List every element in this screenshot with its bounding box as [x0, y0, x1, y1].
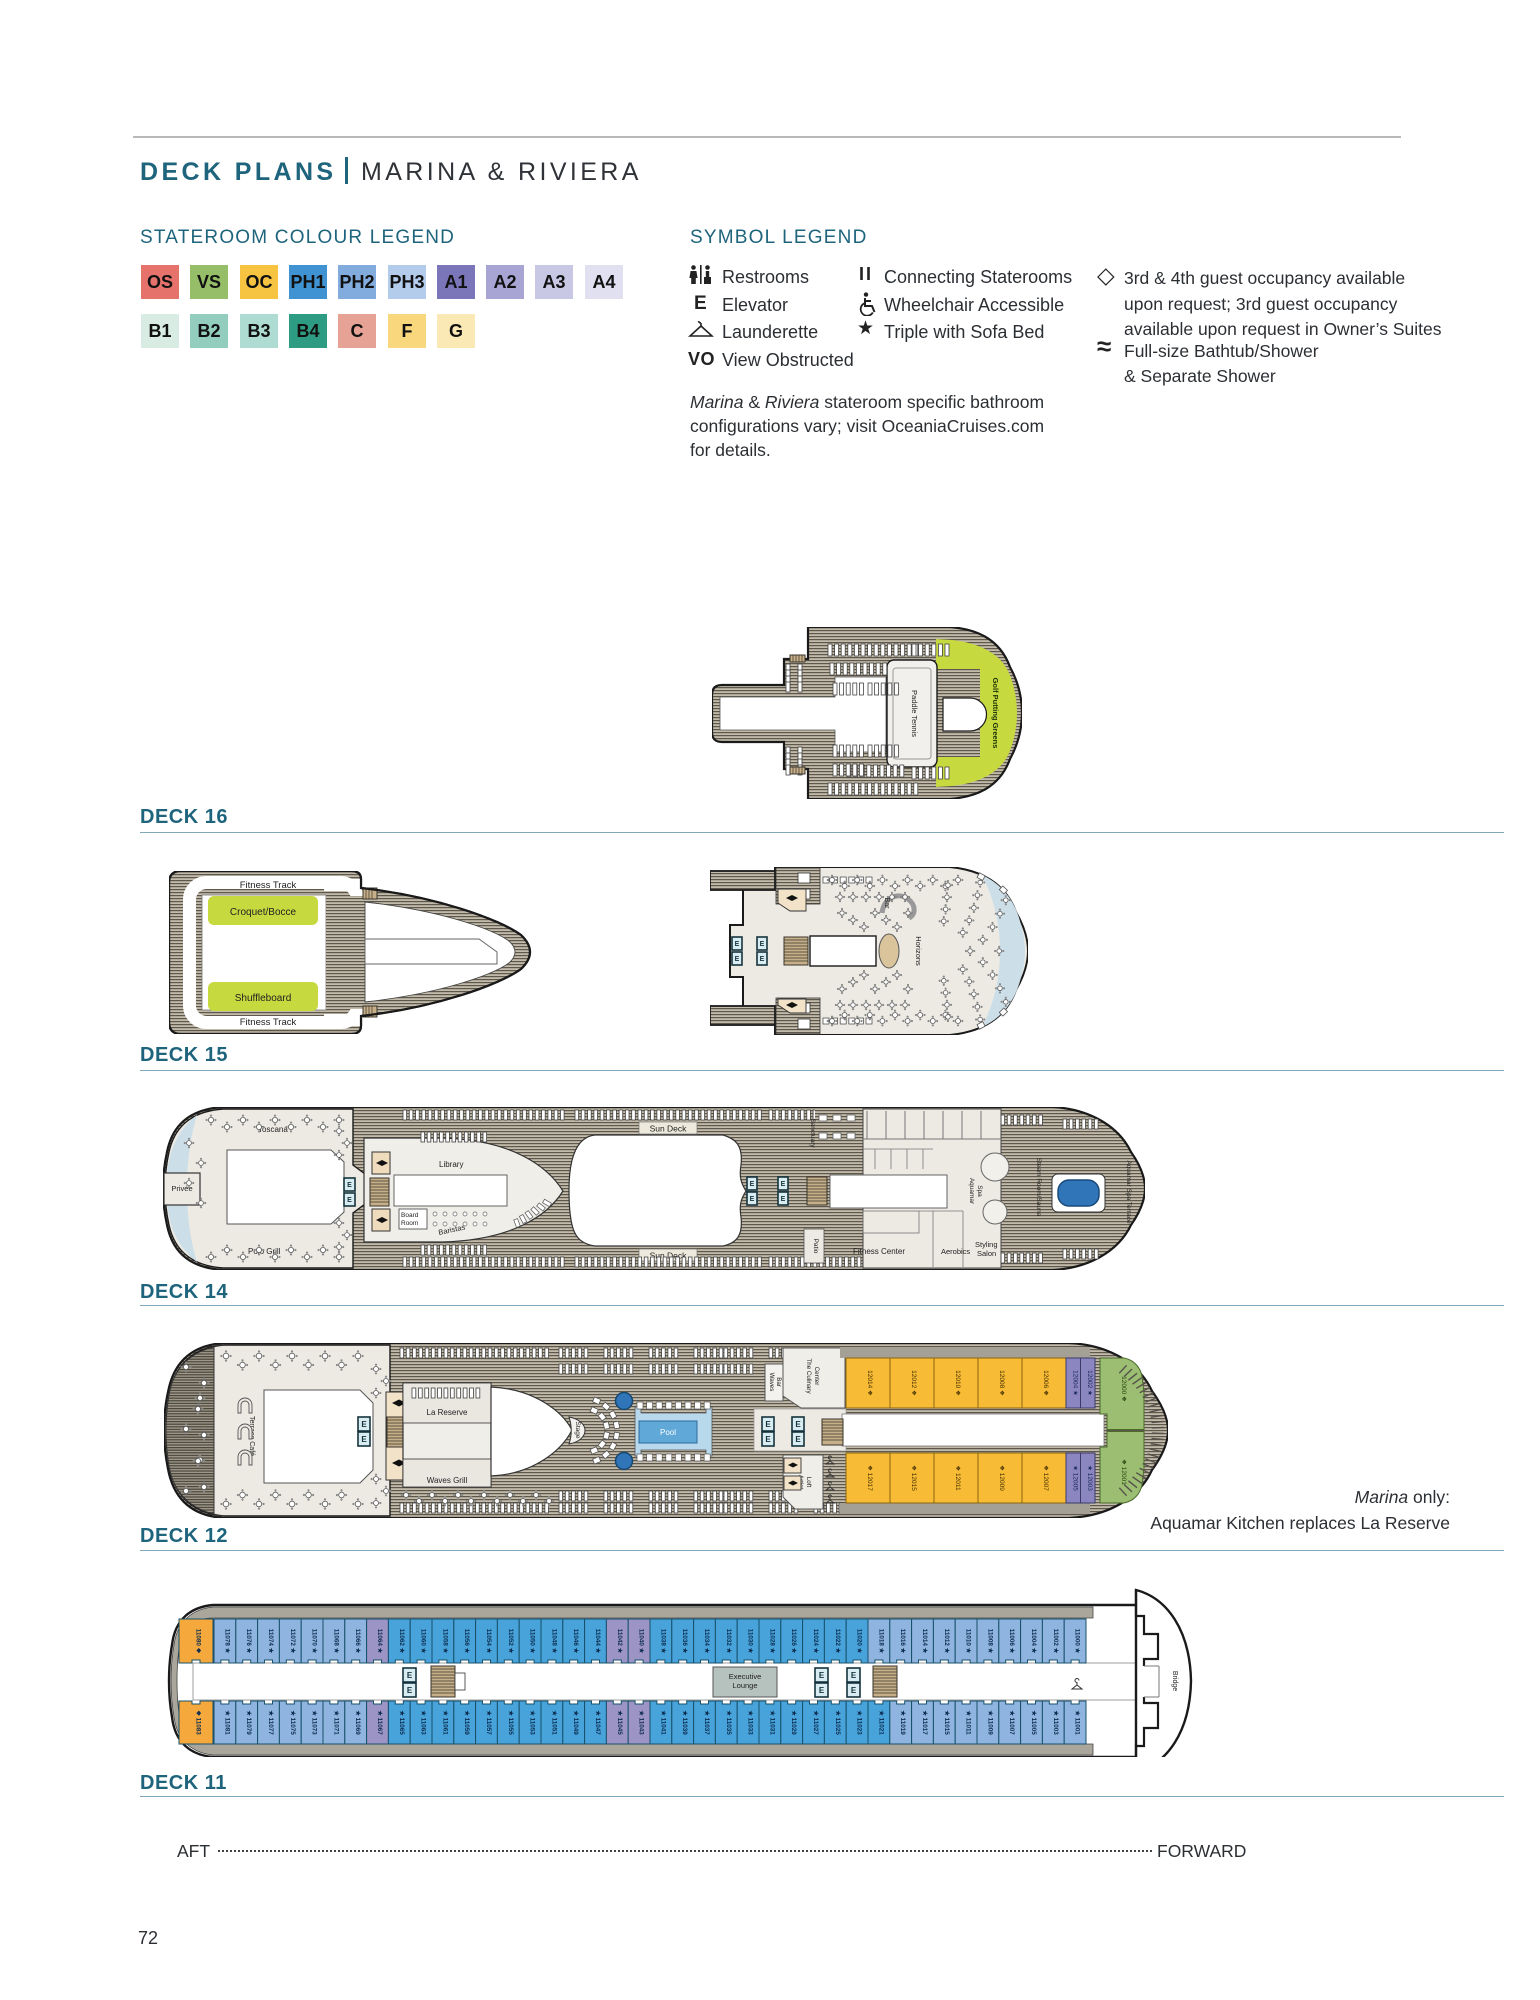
- svg-text:Patio: Patio: [812, 1239, 819, 1254]
- svg-text:★ 11043: ★ 11043: [638, 1709, 645, 1735]
- svg-text:Loft: Loft: [805, 1477, 812, 1488]
- svg-text:E: E: [765, 1420, 771, 1429]
- svg-text:12002 ★: 12002 ★: [1086, 1370, 1094, 1396]
- svg-text:12010 ❖: 12010 ❖: [954, 1370, 961, 1396]
- svg-text:Aquamar: Aquamar: [968, 1178, 975, 1205]
- svg-text:12012 ❖: 12012 ❖: [910, 1370, 917, 1396]
- svg-text:★ 11073: ★ 11073: [311, 1709, 318, 1735]
- svg-text:E: E: [819, 1686, 825, 1695]
- svg-text:★ 11031: ★ 11031: [768, 1709, 775, 1735]
- svg-text:E: E: [851, 1686, 857, 1695]
- svg-text:11080 ❖: 11080 ❖: [195, 1629, 202, 1654]
- svg-text:★ 11023: ★ 11023: [856, 1709, 863, 1735]
- svg-text:11004 ★: 11004 ★: [1030, 1629, 1037, 1654]
- svg-text:Golf Putting Greens: Golf Putting Greens: [991, 678, 1000, 749]
- svg-text:E: E: [765, 1435, 771, 1444]
- svg-text:E: E: [795, 1420, 801, 1429]
- svg-text:Spa: Spa: [976, 1185, 983, 1197]
- svg-text:12006 ❖: 12006 ❖: [1042, 1370, 1049, 1396]
- svg-text:★ 11057: ★ 11057: [485, 1709, 492, 1735]
- svg-text:★ 11071: ★ 11071: [332, 1709, 339, 1735]
- svg-text:11048 ★: 11048 ★: [550, 1629, 557, 1654]
- svg-text:11066 ★: 11066 ★: [354, 1629, 361, 1654]
- svg-text:11008 ★: 11008 ★: [986, 1629, 993, 1654]
- svg-text:Executive: Executive: [729, 1672, 762, 1681]
- svg-text:★ 11077: ★ 11077: [267, 1709, 274, 1735]
- svg-text:11028 ★: 11028 ★: [768, 1629, 775, 1654]
- svg-text:★ 11039: ★ 11039: [681, 1709, 688, 1735]
- svg-text:11040 ★: 11040 ★: [638, 1629, 645, 1654]
- svg-text:Fitness Center: Fitness Center: [853, 1247, 905, 1256]
- svg-text:Bar: Bar: [775, 1377, 782, 1387]
- svg-text:11044 ★: 11044 ★: [594, 1629, 601, 1654]
- svg-text:E: E: [347, 1182, 352, 1189]
- svg-text:★ 11045: ★ 11045: [616, 1709, 623, 1735]
- svg-text:E: E: [407, 1686, 413, 1695]
- svg-text:❖ 12017: ❖ 12017: [866, 1465, 873, 1491]
- svg-text:Styling: Styling: [975, 1240, 998, 1249]
- svg-text:❖ 12007: ❖ 12007: [1042, 1465, 1049, 1491]
- svg-text:E: E: [781, 1196, 786, 1203]
- svg-text:★ 11025: ★ 11025: [834, 1709, 841, 1735]
- svg-text:★ 11029: ★ 11029: [790, 1709, 797, 1735]
- svg-text:11056 ★: 11056 ★: [463, 1629, 470, 1654]
- svg-text:E: E: [361, 1420, 367, 1429]
- svg-text:E: E: [407, 1671, 413, 1680]
- svg-text:★ 11017: ★ 11017: [921, 1709, 928, 1735]
- svg-text:★ 11007: ★ 11007: [1008, 1709, 1015, 1735]
- svg-text:★ 11075: ★ 11075: [289, 1709, 296, 1735]
- svg-text:11076 ★: 11076 ★: [245, 1629, 252, 1654]
- svg-text:Sanctuary: Sanctuary: [809, 1118, 816, 1148]
- svg-text:E: E: [819, 1671, 825, 1680]
- svg-text:★ 11065: ★ 11065: [398, 1709, 405, 1735]
- svg-text:12014 ❖: 12014 ❖: [866, 1370, 873, 1396]
- svg-text:11022 ★: 11022 ★: [834, 1629, 841, 1654]
- svg-text:Fitness Track: Fitness Track: [240, 1017, 297, 1028]
- svg-text:Steam Room/Sauna: Steam Room/Sauna: [1035, 1158, 1042, 1217]
- svg-text:11034 ★: 11034 ★: [703, 1629, 710, 1654]
- svg-text:E: E: [795, 1435, 801, 1444]
- svg-text:11020 ★: 11020 ★: [856, 1629, 863, 1654]
- svg-text:Pool: Pool: [660, 1428, 676, 1437]
- svg-text:❖ 12001: ❖ 12001: [1120, 1459, 1127, 1485]
- svg-text:Center: Center: [813, 1367, 820, 1386]
- svg-text:Paddle Tennis: Paddle Tennis: [910, 690, 919, 737]
- svg-text:★ 11037: ★ 11037: [703, 1709, 710, 1735]
- svg-text:11038 ★: 11038 ★: [659, 1629, 666, 1654]
- svg-text:11068 ★: 11068 ★: [332, 1629, 339, 1654]
- svg-text:★ 11005: ★ 11005: [1030, 1709, 1037, 1735]
- svg-text:11014 ★: 11014 ★: [921, 1629, 928, 1654]
- svg-text:★ 11001: ★ 11001: [1074, 1709, 1081, 1735]
- svg-text:★ 11035: ★ 11035: [725, 1709, 732, 1735]
- svg-text:Croquet/Bocce: Croquet/Bocce: [230, 907, 297, 918]
- svg-text:11062 ★: 11062 ★: [398, 1629, 405, 1654]
- svg-text:Lounge: Lounge: [732, 1681, 757, 1690]
- svg-text:★ 11051: ★ 11051: [550, 1709, 557, 1735]
- svg-text:E: E: [781, 1181, 786, 1188]
- svg-text:Stage: Stage: [574, 1422, 581, 1439]
- svg-text:★ 11003: ★ 11003: [1052, 1709, 1059, 1735]
- svg-text:E: E: [347, 1197, 352, 1204]
- svg-text:11016 ★: 11016 ★: [899, 1629, 906, 1654]
- svg-text:11024 ★: 11024 ★: [812, 1629, 819, 1654]
- svg-text:Room: Room: [401, 1220, 418, 1227]
- svg-text:La Reserve: La Reserve: [427, 1408, 468, 1417]
- svg-text:11042 ★: 11042 ★: [616, 1629, 623, 1654]
- svg-text:★ 11063: ★ 11063: [420, 1709, 427, 1735]
- svg-text:11018 ★: 11018 ★: [877, 1629, 884, 1654]
- svg-text:11006 ★: 11006 ★: [1008, 1629, 1015, 1654]
- svg-text:Shuffleboard: Shuffleboard: [235, 993, 292, 1004]
- svg-text:11032 ★: 11032 ★: [725, 1629, 732, 1654]
- svg-text:★ 11069: ★ 11069: [354, 1709, 361, 1735]
- svg-text:11072 ★: 11072 ★: [289, 1629, 296, 1654]
- svg-text:★ 11021: ★ 11021: [877, 1709, 884, 1735]
- svg-text:★ 12005: ★ 12005: [1071, 1465, 1079, 1491]
- svg-text:❖ 12009: ❖ 12009: [998, 1465, 1005, 1491]
- svg-text:11058 ★: 11058 ★: [441, 1629, 448, 1654]
- svg-text:★ 11011: ★ 11011: [965, 1709, 972, 1735]
- svg-text:11078 ★: 11078 ★: [223, 1629, 230, 1654]
- svg-text:★ 11059: ★ 11059: [463, 1709, 470, 1735]
- svg-text:Board: Board: [401, 1212, 419, 1219]
- svg-text:★ 11055: ★ 11055: [507, 1709, 514, 1735]
- svg-text:★ 11015: ★ 11015: [943, 1709, 950, 1735]
- svg-text:❖ 12015: ❖ 12015: [910, 1465, 917, 1491]
- svg-text:E: E: [750, 1196, 755, 1203]
- svg-text:11036 ★: 11036 ★: [681, 1629, 688, 1654]
- svg-text:Salon: Salon: [977, 1249, 996, 1258]
- svg-text:★ 11033: ★ 11033: [747, 1709, 754, 1735]
- svg-text:Waves: Waves: [768, 1373, 775, 1392]
- svg-text:11074 ★: 11074 ★: [267, 1629, 274, 1654]
- svg-text:❖ 11083: ❖ 11083: [195, 1710, 202, 1735]
- svg-text:★ 11081: ★ 11081: [223, 1709, 230, 1735]
- svg-text:11064 ★: 11064 ★: [376, 1629, 383, 1654]
- svg-text:★ 11061: ★ 11061: [441, 1709, 448, 1735]
- svg-text:11052 ★: 11052 ★: [507, 1629, 514, 1654]
- svg-text:Library: Library: [439, 1160, 463, 1169]
- svg-text:★ 12003: ★ 12003: [1086, 1465, 1094, 1491]
- svg-text:11054 ★: 11054 ★: [485, 1629, 492, 1654]
- svg-text:Fitness Track: Fitness Track: [240, 880, 297, 891]
- svg-text:Bridge: Bridge: [1171, 1671, 1178, 1691]
- svg-text:★ 11067: ★ 11067: [376, 1709, 383, 1735]
- svg-text:Sun Deck: Sun Deck: [650, 1251, 688, 1261]
- svg-text:11012 ★: 11012 ★: [943, 1629, 950, 1654]
- svg-text:★ 11027: ★ 11027: [812, 1709, 819, 1735]
- svg-text:11060 ★: 11060 ★: [420, 1629, 427, 1654]
- svg-text:Aquamar Spa Terrace: Aquamar Spa Terrace: [1125, 1160, 1132, 1223]
- svg-text:★ 11053: ★ 11053: [529, 1709, 536, 1735]
- svg-text:★ 11009: ★ 11009: [986, 1709, 993, 1735]
- svg-text:11000 ★: 11000 ★: [1074, 1629, 1081, 1654]
- svg-text:★ 11019: ★ 11019: [899, 1709, 906, 1735]
- svg-text:E: E: [750, 1181, 755, 1188]
- svg-text:★ 11049: ★ 11049: [572, 1709, 579, 1735]
- svg-text:E: E: [851, 1671, 857, 1680]
- svg-text:E: E: [361, 1435, 367, 1444]
- svg-text:★ 11041: ★ 11041: [659, 1709, 666, 1735]
- svg-text:11030 ★: 11030 ★: [747, 1629, 754, 1654]
- svg-text:Aerobics: Aerobics: [941, 1247, 970, 1256]
- svg-text:11010 ★: 11010 ★: [965, 1629, 972, 1654]
- svg-text:12004 ★: 12004 ★: [1071, 1370, 1079, 1396]
- svg-text:★ 11047: ★ 11047: [594, 1709, 601, 1735]
- svg-text:12008 ❖: 12008 ❖: [998, 1370, 1005, 1396]
- svg-text:Waves Grill: Waves Grill: [427, 1476, 468, 1485]
- svg-text:11070 ★: 11070 ★: [311, 1629, 318, 1654]
- svg-text:11046 ★: 11046 ★: [572, 1629, 579, 1654]
- svg-text:The Culinary: The Culinary: [805, 1358, 812, 1394]
- svg-text:11050 ★: 11050 ★: [529, 1629, 536, 1654]
- svg-text:11026 ★: 11026 ★: [790, 1629, 797, 1654]
- svg-text:11002 ★: 11002 ★: [1052, 1629, 1059, 1654]
- svg-text:Sun Deck: Sun Deck: [650, 1124, 688, 1134]
- svg-text:12000 ❖: 12000 ❖: [1120, 1376, 1127, 1402]
- svg-text:❖ 12011: ❖ 12011: [954, 1465, 961, 1491]
- svg-text:★ 11079: ★ 11079: [245, 1709, 252, 1735]
